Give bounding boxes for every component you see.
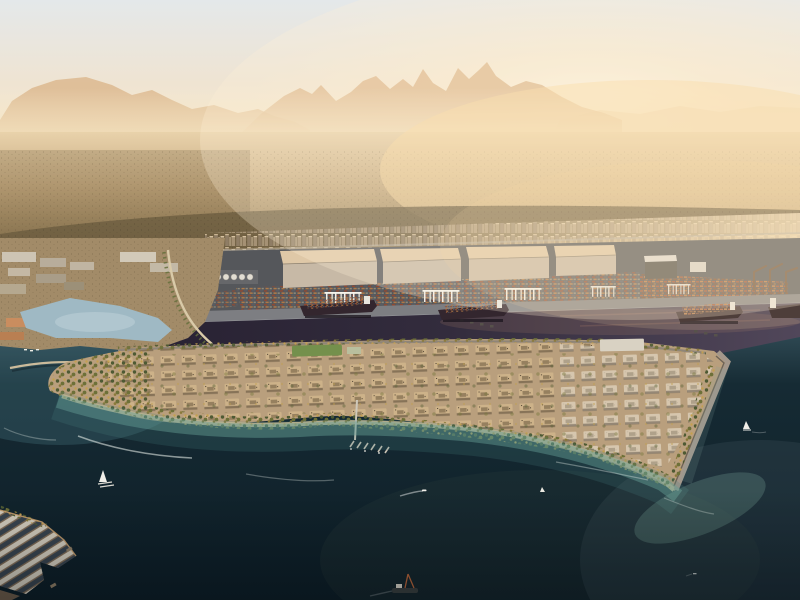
tank xyxy=(247,274,253,280)
tank xyxy=(231,274,237,280)
lagoon-highlight xyxy=(55,312,135,332)
light-court xyxy=(347,347,361,354)
aerial-render-image xyxy=(0,0,800,600)
scene-svg xyxy=(0,0,800,600)
bottom-vignette xyxy=(0,490,800,600)
tank xyxy=(239,274,245,280)
white-complex xyxy=(600,339,644,352)
sports-field xyxy=(292,344,342,356)
tank xyxy=(223,274,229,280)
